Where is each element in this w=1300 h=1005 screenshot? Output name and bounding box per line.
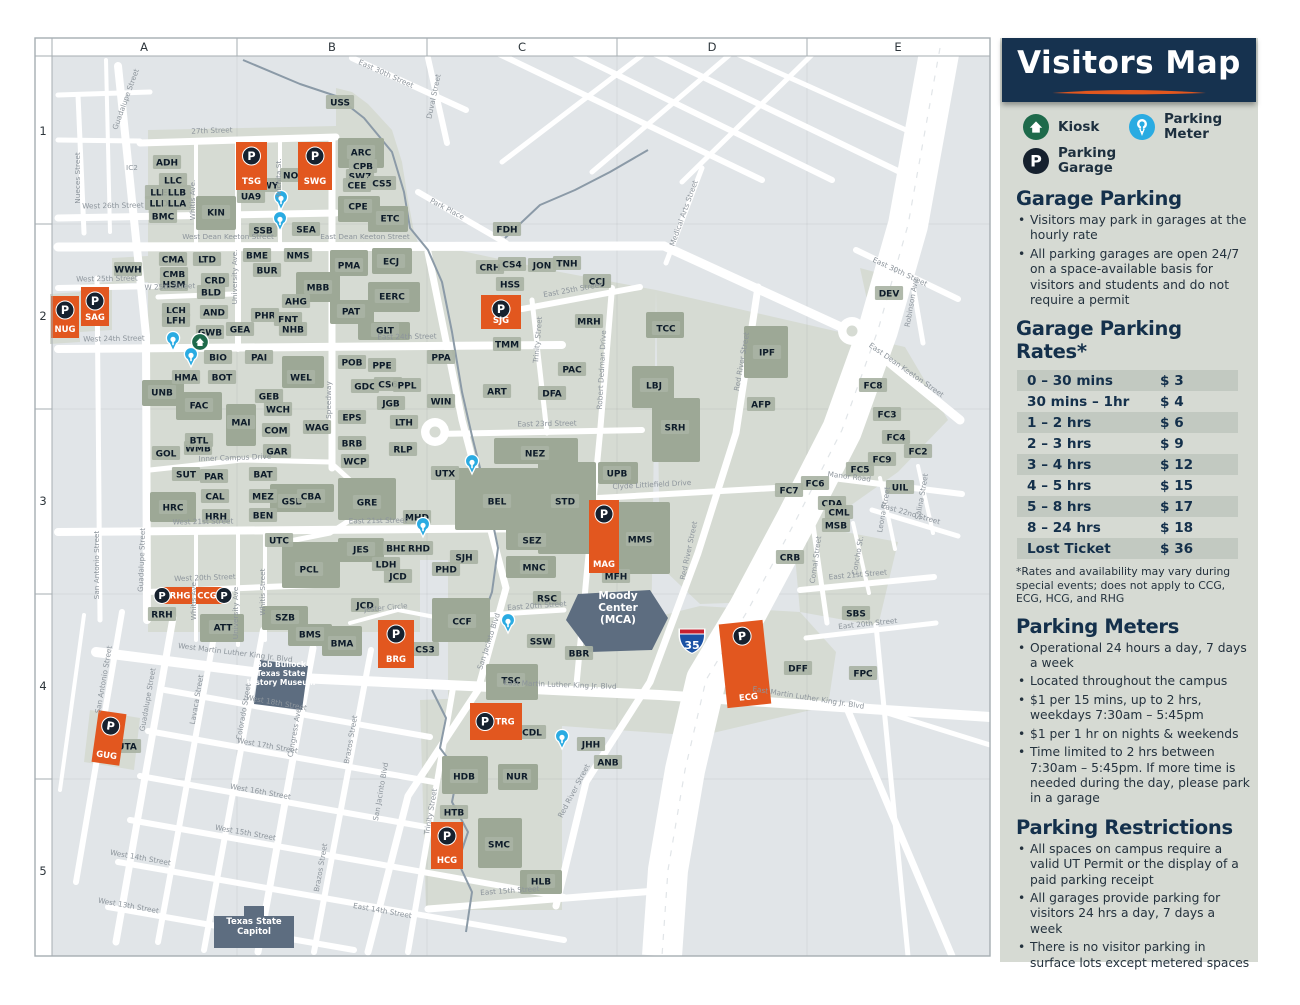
svg-text:POB: POB — [341, 359, 362, 369]
street-name: East 21st Street — [349, 515, 408, 525]
svg-text:FC9: FC9 — [872, 456, 891, 466]
svg-text:BOT: BOT — [212, 374, 234, 384]
svg-text:RRH: RRH — [151, 611, 172, 621]
garage-code: SAG — [85, 313, 105, 323]
svg-text:CDL: CDL — [522, 729, 542, 739]
building-label: GEA — [226, 322, 254, 336]
street-name: Nueces Street — [73, 152, 82, 204]
garage-p-icon: P — [61, 304, 69, 317]
grid-letter: C — [518, 40, 526, 54]
building-label: MAI — [227, 415, 255, 429]
building-label: CML — [825, 505, 853, 519]
building-label: GEB — [255, 389, 283, 403]
garage-marker-MAG: PMAG — [589, 500, 619, 573]
svg-text:UPB: UPB — [607, 470, 628, 480]
building-label: GRE — [353, 495, 381, 509]
svg-text:MEZ: MEZ — [252, 493, 274, 503]
building-label: BEL — [483, 494, 511, 508]
street-name: West Dean Keeton Street — [182, 232, 274, 241]
garage-p-icon: P — [311, 150, 319, 163]
building-label: HTB — [440, 805, 468, 819]
bullet-item: Time limited to 2 hrs between 7:30am – 5… — [1018, 745, 1250, 807]
building-label: MRH — [575, 314, 603, 328]
grid-letter: E — [894, 40, 901, 54]
building-label: DFF — [784, 661, 812, 675]
building-label: UNB — [148, 385, 176, 399]
svg-text:TNH: TNH — [556, 260, 577, 270]
garage-code: MAG — [593, 560, 615, 570]
building-label: CMA — [159, 252, 187, 266]
garage-code: NUG — [55, 325, 76, 335]
garage-p-icon: P — [737, 630, 747, 644]
svg-text:JGB: JGB — [381, 400, 400, 410]
garage-marker-SAG: PSAG — [81, 287, 109, 326]
bullet-item: There is no visitor parking in surface l… — [1018, 940, 1250, 971]
rate-row: 4 – 5 hrs$ 15 — [1017, 475, 1238, 496]
building-label: BLD — [197, 285, 225, 299]
landmark-label: Capitol — [237, 927, 271, 937]
street-name: West 26th Street — [82, 200, 144, 210]
svg-text:ECJ: ECJ — [383, 258, 399, 268]
svg-text:SEA: SEA — [296, 226, 316, 236]
street-name: Whitis Ave. — [189, 580, 198, 621]
garage-code: HCG — [437, 856, 457, 866]
garage-marker-BRG: PBRG — [378, 620, 414, 668]
garage-marker-TRG: PTRG — [470, 703, 522, 740]
building-label: BBR — [565, 646, 593, 660]
building-label: FC8 — [859, 378, 887, 392]
grid-letter: A — [140, 40, 148, 54]
rate-duration: 8 – 24 hrs — [1017, 520, 1160, 536]
bullet-item: Located throughout the campus — [1018, 674, 1250, 689]
rate-price: $ 17 — [1160, 499, 1238, 515]
building-label: POB — [338, 355, 366, 369]
svg-text:CS5: CS5 — [372, 180, 392, 190]
svg-text:PPL: PPL — [398, 382, 417, 392]
rate-price: $ 6 — [1160, 415, 1238, 431]
svg-text:GEA: GEA — [230, 326, 251, 336]
svg-text:NMS: NMS — [287, 252, 310, 262]
building-label: CPE — [344, 199, 372, 213]
landmark-label: Center — [598, 602, 638, 614]
svg-text:CRB: CRB — [780, 554, 801, 564]
building-label: LTD — [193, 252, 221, 266]
street-name: Wichita St. — [274, 158, 283, 197]
building-label: CEE — [343, 178, 371, 192]
svg-text:EERC: EERC — [379, 293, 405, 303]
rate-row: 3 – 4 hrs$ 12 — [1017, 454, 1238, 475]
building-label: WCP — [341, 454, 369, 468]
building-label: ADH — [153, 155, 181, 169]
svg-text:CCF: CCF — [452, 618, 471, 628]
grid-letter: D — [708, 40, 717, 54]
svg-text:HDB: HDB — [453, 773, 475, 783]
visitors-map-page: MoodyCenter(MCA)Bob BullockTexas StateHi… — [0, 0, 1300, 1005]
rate-row: 1 – 2 hrs$ 6 — [1017, 412, 1238, 433]
svg-text:FPC: FPC — [853, 670, 873, 680]
legend-kiosk-label: Kiosk — [1058, 120, 1099, 135]
building-label: BEN — [249, 508, 277, 522]
garage-code: RHG — [170, 592, 191, 602]
building-label: AND — [200, 305, 228, 319]
building-label: SEA — [292, 222, 320, 236]
svg-text:DFF: DFF — [788, 665, 808, 675]
svg-text:LBJ: LBJ — [646, 382, 662, 392]
garage-p-icon: P — [600, 508, 608, 521]
svg-text:HSS: HSS — [500, 281, 520, 291]
garage-marker-RHG: RHGP — [154, 587, 192, 604]
svg-text:NHB: NHB — [282, 326, 304, 336]
svg-text:WCP: WCP — [343, 458, 367, 468]
building-label: ANB — [594, 755, 622, 769]
legend-item-garage: P Parking Garage — [1022, 146, 1126, 176]
rate-row: 8 – 24 hrs$ 18 — [1017, 517, 1238, 538]
svg-text:SSW: SSW — [530, 638, 553, 648]
svg-text:RLP: RLP — [393, 446, 413, 456]
svg-text:CBA: CBA — [301, 493, 321, 503]
svg-text:CS3: CS3 — [415, 646, 435, 656]
building-label: CBA — [297, 489, 325, 503]
building-label: GOL — [152, 446, 180, 460]
svg-text:USS: USS — [330, 99, 350, 109]
building-label: RHD — [405, 541, 433, 555]
building-label: NMS — [284, 248, 312, 262]
building-label: UA9 — [237, 189, 265, 203]
bullet-item: $1 per 1 hr on nights & weekends — [1018, 727, 1250, 742]
rate-row: Lost Ticket$ 36 — [1017, 538, 1238, 559]
svg-text:MRH: MRH — [577, 318, 600, 328]
svg-text:BRB: BRB — [342, 440, 363, 450]
svg-text:IPF: IPF — [759, 349, 775, 359]
section-heading-parking-meters: Parking Meters — [1016, 615, 1244, 638]
building-label: CDL — [518, 725, 546, 739]
building-label: BRB — [338, 436, 366, 450]
svg-text:SBS: SBS — [846, 610, 866, 620]
building-label: PPE — [368, 358, 396, 372]
svg-text:COM: COM — [264, 427, 287, 437]
building-label: WIN — [427, 394, 455, 408]
svg-text:MSB: MSB — [825, 522, 847, 532]
svg-text:CPE: CPE — [348, 203, 367, 213]
rate-price: $ 18 — [1160, 520, 1238, 536]
rate-price: $ 4 — [1160, 394, 1238, 410]
building-label: PCL — [295, 562, 323, 576]
svg-text:LTH: LTH — [395, 419, 413, 429]
svg-text:FC6: FC6 — [805, 480, 824, 490]
building-label: HRC — [159, 500, 187, 514]
svg-text:CAL: CAL — [205, 493, 225, 503]
garage-parking-bullets: Visitors may park in garages at the hour… — [1018, 213, 1250, 308]
bullet-item: $1 per 15 mins, up to 2 hrs, weekdays 7:… — [1018, 693, 1250, 724]
landmark-label: (MCA) — [600, 614, 636, 626]
svg-text:UA9: UA9 — [241, 193, 261, 203]
landmark-label: Texas State — [257, 669, 306, 678]
building-label: SJH — [450, 550, 478, 564]
landmark-label: History Museum — [247, 678, 316, 687]
garage-marker-SJG: PSJG — [481, 295, 521, 329]
building-label: WEL — [287, 370, 315, 384]
street — [58, 92, 150, 95]
legend-item-kiosk: Kiosk — [1022, 112, 1126, 142]
building-label: RRH — [148, 607, 176, 621]
building-label: SZB — [271, 610, 299, 624]
grid-number: 5 — [39, 864, 46, 878]
campus-map: MoodyCenter(MCA)Bob BullockTexas StateHi… — [0, 0, 1000, 1005]
building-label: AHG — [282, 294, 310, 308]
svg-text:PAR: PAR — [204, 473, 224, 483]
building-label: CCF — [448, 614, 476, 628]
building-label: NEZ — [521, 446, 549, 460]
garage-p-icon: P — [220, 591, 227, 602]
street-name: Speedway — [324, 381, 333, 419]
legend-meter-label: Parking Meter — [1164, 112, 1226, 142]
svg-text:BME: BME — [246, 252, 268, 262]
rate-duration: 3 – 4 hrs — [1017, 457, 1160, 473]
building-label: LBJ — [640, 378, 668, 392]
street-name: West 24th Street — [83, 333, 145, 343]
building-label: DFA — [538, 386, 566, 400]
building-label: COM — [262, 423, 290, 437]
sidebar-title-banner: Visitors Map — [1002, 38, 1256, 102]
building-label: ARC — [347, 145, 375, 159]
street-name: East 24th Street — [377, 331, 437, 341]
garage-p-icon: P — [497, 303, 505, 316]
svg-text:JON: JON — [532, 262, 552, 272]
title-underline-swoosh — [1025, 89, 1233, 97]
building-label: FC2 — [904, 444, 932, 458]
kiosk-icon — [1022, 113, 1050, 141]
svg-text:FC7: FC7 — [779, 487, 798, 497]
svg-text:BUR: BUR — [256, 267, 277, 277]
svg-text:CEE: CEE — [348, 182, 367, 192]
rate-duration: 30 mins – 1hr — [1017, 394, 1160, 410]
building-label: HMA — [172, 370, 200, 384]
svg-text:SRH: SRH — [665, 424, 686, 434]
svg-text:FDH: FDH — [496, 226, 517, 236]
building-label: USS — [326, 95, 354, 109]
building-label: MMS — [626, 532, 654, 546]
building-label: PAR — [200, 469, 228, 483]
svg-text:MBB: MBB — [307, 284, 330, 294]
building-label: LTH — [390, 415, 418, 429]
street-name: San Antonio Street — [92, 531, 101, 600]
building-label: LLC — [159, 173, 187, 187]
rate-price: $ 9 — [1160, 436, 1238, 452]
rate-price: $ 15 — [1160, 478, 1238, 494]
building-label: CRB — [776, 550, 804, 564]
svg-text:PPA: PPA — [431, 354, 450, 364]
building-label: TMM — [493, 337, 521, 351]
street-name: East 23rd Street — [517, 418, 577, 428]
building-label: JES — [347, 542, 375, 556]
svg-text:LLA: LLA — [168, 200, 186, 210]
building-label: BUR — [253, 263, 281, 277]
svg-text:HTB: HTB — [444, 809, 465, 819]
street-name: 27th Street — [191, 125, 233, 135]
rate-duration: 4 – 5 hrs — [1017, 478, 1160, 494]
street — [58, 246, 664, 247]
building-label: JCD — [384, 569, 412, 583]
building-label: LDH — [372, 557, 400, 571]
svg-text:LTD: LTD — [198, 256, 216, 266]
svg-text:MNC: MNC — [522, 564, 545, 574]
parking-meter-icon — [1128, 112, 1156, 142]
svg-text:SUT: SUT — [176, 471, 197, 481]
building-label: WCH — [264, 402, 292, 416]
rate-price: $ 12 — [1160, 457, 1238, 473]
svg-text:STD: STD — [555, 498, 575, 508]
svg-text:FC4: FC4 — [886, 434, 905, 444]
building-label: MEZ — [249, 489, 277, 503]
svg-text:PAI: PAI — [251, 354, 267, 364]
building-label: RLP — [389, 442, 417, 456]
svg-text:JES: JES — [352, 546, 369, 556]
building-label: JON — [528, 258, 556, 272]
building-label: MNC — [520, 560, 548, 574]
garage-code: TSG — [242, 177, 261, 187]
svg-text:AHG: AHG — [285, 298, 307, 308]
building-label: BAT — [249, 467, 277, 481]
building-label: UTC — [265, 533, 293, 547]
grid-number: 2 — [39, 309, 46, 323]
section-heading-parking-restrictions: Parking Restrictions — [1016, 816, 1244, 839]
svg-text:GDC: GDC — [354, 383, 376, 393]
svg-text:WIN: WIN — [431, 398, 452, 408]
building-label: JHH — [577, 737, 605, 751]
building-label: FC6 — [801, 476, 829, 490]
building-label: LFH — [162, 313, 190, 327]
building-label: PPA — [427, 350, 455, 364]
building-label: HSS — [496, 277, 524, 291]
rate-duration: 0 – 30 mins — [1017, 373, 1160, 389]
svg-text:GRE: GRE — [357, 499, 377, 509]
garage-marker-NUG: PNUG — [51, 296, 79, 338]
svg-text:ART: ART — [487, 388, 507, 398]
building-label: FDH — [493, 222, 521, 236]
street — [58, 345, 562, 349]
building-label: FC4 — [882, 430, 910, 444]
svg-text:ANB: ANB — [597, 759, 618, 769]
svg-text:PMA: PMA — [338, 262, 361, 272]
garage-p-icon: P — [247, 150, 255, 163]
rate-duration: Lost Ticket — [1017, 541, 1160, 557]
building-label: PHD — [432, 562, 460, 576]
info-sidebar: Visitors Map Kiosk — [1000, 38, 1258, 962]
svg-text:KIN: KIN — [207, 209, 225, 219]
kiosk-pin — [192, 334, 209, 351]
building-label: BME — [243, 248, 271, 262]
building-label: SEZ — [518, 533, 546, 547]
street-name: University Ave — [231, 586, 240, 639]
building-label: UPB — [603, 466, 631, 480]
building-label: FPC — [849, 666, 877, 680]
garage-p-icon: P — [158, 591, 165, 602]
grid-number: 4 — [39, 679, 46, 693]
garage-marker-HCG: PHCG — [431, 822, 463, 869]
garage-code: SWG — [304, 177, 326, 187]
building-label: EERC — [375, 289, 410, 303]
building-label: SRH — [661, 420, 689, 434]
bullet-item: Operational 24 hours a day, 7 days a wee… — [1018, 641, 1250, 672]
building-label: SMC — [485, 837, 513, 851]
building-label: PAT — [337, 304, 365, 318]
svg-text:WCH: WCH — [266, 406, 290, 416]
svg-text:FC2: FC2 — [908, 448, 927, 458]
section-heading-garage-rates: Garage Parking Rates* — [1016, 317, 1244, 363]
svg-text:PHR: PHR — [254, 312, 275, 322]
svg-text:LFH: LFH — [166, 317, 185, 327]
building-label: FC3 — [873, 407, 901, 421]
street-name: East Dean Keeton Street — [320, 232, 410, 241]
building-label: TCC — [652, 321, 680, 335]
building-label: BMS — [296, 627, 324, 641]
grid-number: 1 — [39, 124, 46, 138]
svg-text:BEN: BEN — [253, 512, 274, 522]
svg-text:PAT: PAT — [342, 308, 361, 318]
svg-text:WEL: WEL — [290, 374, 312, 384]
street-name: University Ave. — [230, 250, 239, 305]
svg-text:FC8: FC8 — [863, 382, 882, 392]
svg-text:PCL: PCL — [300, 566, 319, 576]
bullet-item: All parking garages are open 24/7 on a s… — [1018, 247, 1250, 309]
building-label: BIO — [204, 350, 232, 364]
garage-code: TRG — [495, 718, 514, 728]
building-label: PMA — [335, 258, 363, 272]
building-label: EPS — [338, 410, 366, 424]
legend-garage-label: Parking Garage — [1058, 146, 1120, 176]
building-label: CS3 — [411, 642, 439, 656]
building-label: SSW — [527, 634, 555, 648]
building-label: ECJ — [377, 254, 405, 268]
grid-letter: B — [328, 40, 336, 54]
garage-code: SJG — [493, 316, 509, 326]
building-label: TNH — [553, 256, 581, 270]
building-label: CAL — [201, 489, 229, 503]
landmark-label: Moody — [598, 590, 637, 602]
building-label: STD — [551, 494, 579, 508]
svg-text:AND: AND — [203, 309, 225, 319]
svg-text:BBR: BBR — [569, 650, 590, 660]
building-label: DEV — [875, 286, 903, 300]
svg-text:DFA: DFA — [542, 390, 562, 400]
svg-text:FC3: FC3 — [877, 411, 896, 421]
grid-number: 3 — [39, 494, 46, 508]
svg-text:BEL: BEL — [488, 498, 507, 508]
parking-restrictions-bullets: All spaces on campus require a valid UT … — [1018, 842, 1250, 971]
svg-text:AFP: AFP — [751, 401, 771, 411]
svg-text:JHH: JHH — [581, 741, 600, 751]
building-label: HDB — [450, 769, 478, 783]
svg-text:BHD: BHD — [386, 545, 408, 555]
svg-text:CMA: CMA — [162, 256, 185, 266]
svg-text:CS4: CS4 — [502, 261, 522, 271]
svg-text:UNB: UNB — [151, 389, 173, 399]
garage-code: CCG — [197, 592, 216, 602]
garage-code: BRG — [386, 655, 406, 665]
building-label: ETC — [376, 211, 404, 225]
svg-text:ETC: ETC — [381, 215, 400, 225]
parking-garage-icon: P — [1022, 147, 1050, 175]
svg-text:WAG: WAG — [305, 424, 329, 434]
garage-marker-TSG: PTSG — [236, 142, 267, 190]
rates-footnote: *Rates and availability may vary during … — [1016, 565, 1246, 605]
svg-text:NUR: NUR — [506, 773, 528, 783]
svg-text:BIO: BIO — [209, 354, 227, 364]
garage-p-icon: P — [392, 628, 400, 641]
building-label: FAC — [185, 398, 213, 412]
garage-marker-SWG: PSWG — [298, 142, 332, 190]
building-label: CRD — [201, 273, 229, 287]
